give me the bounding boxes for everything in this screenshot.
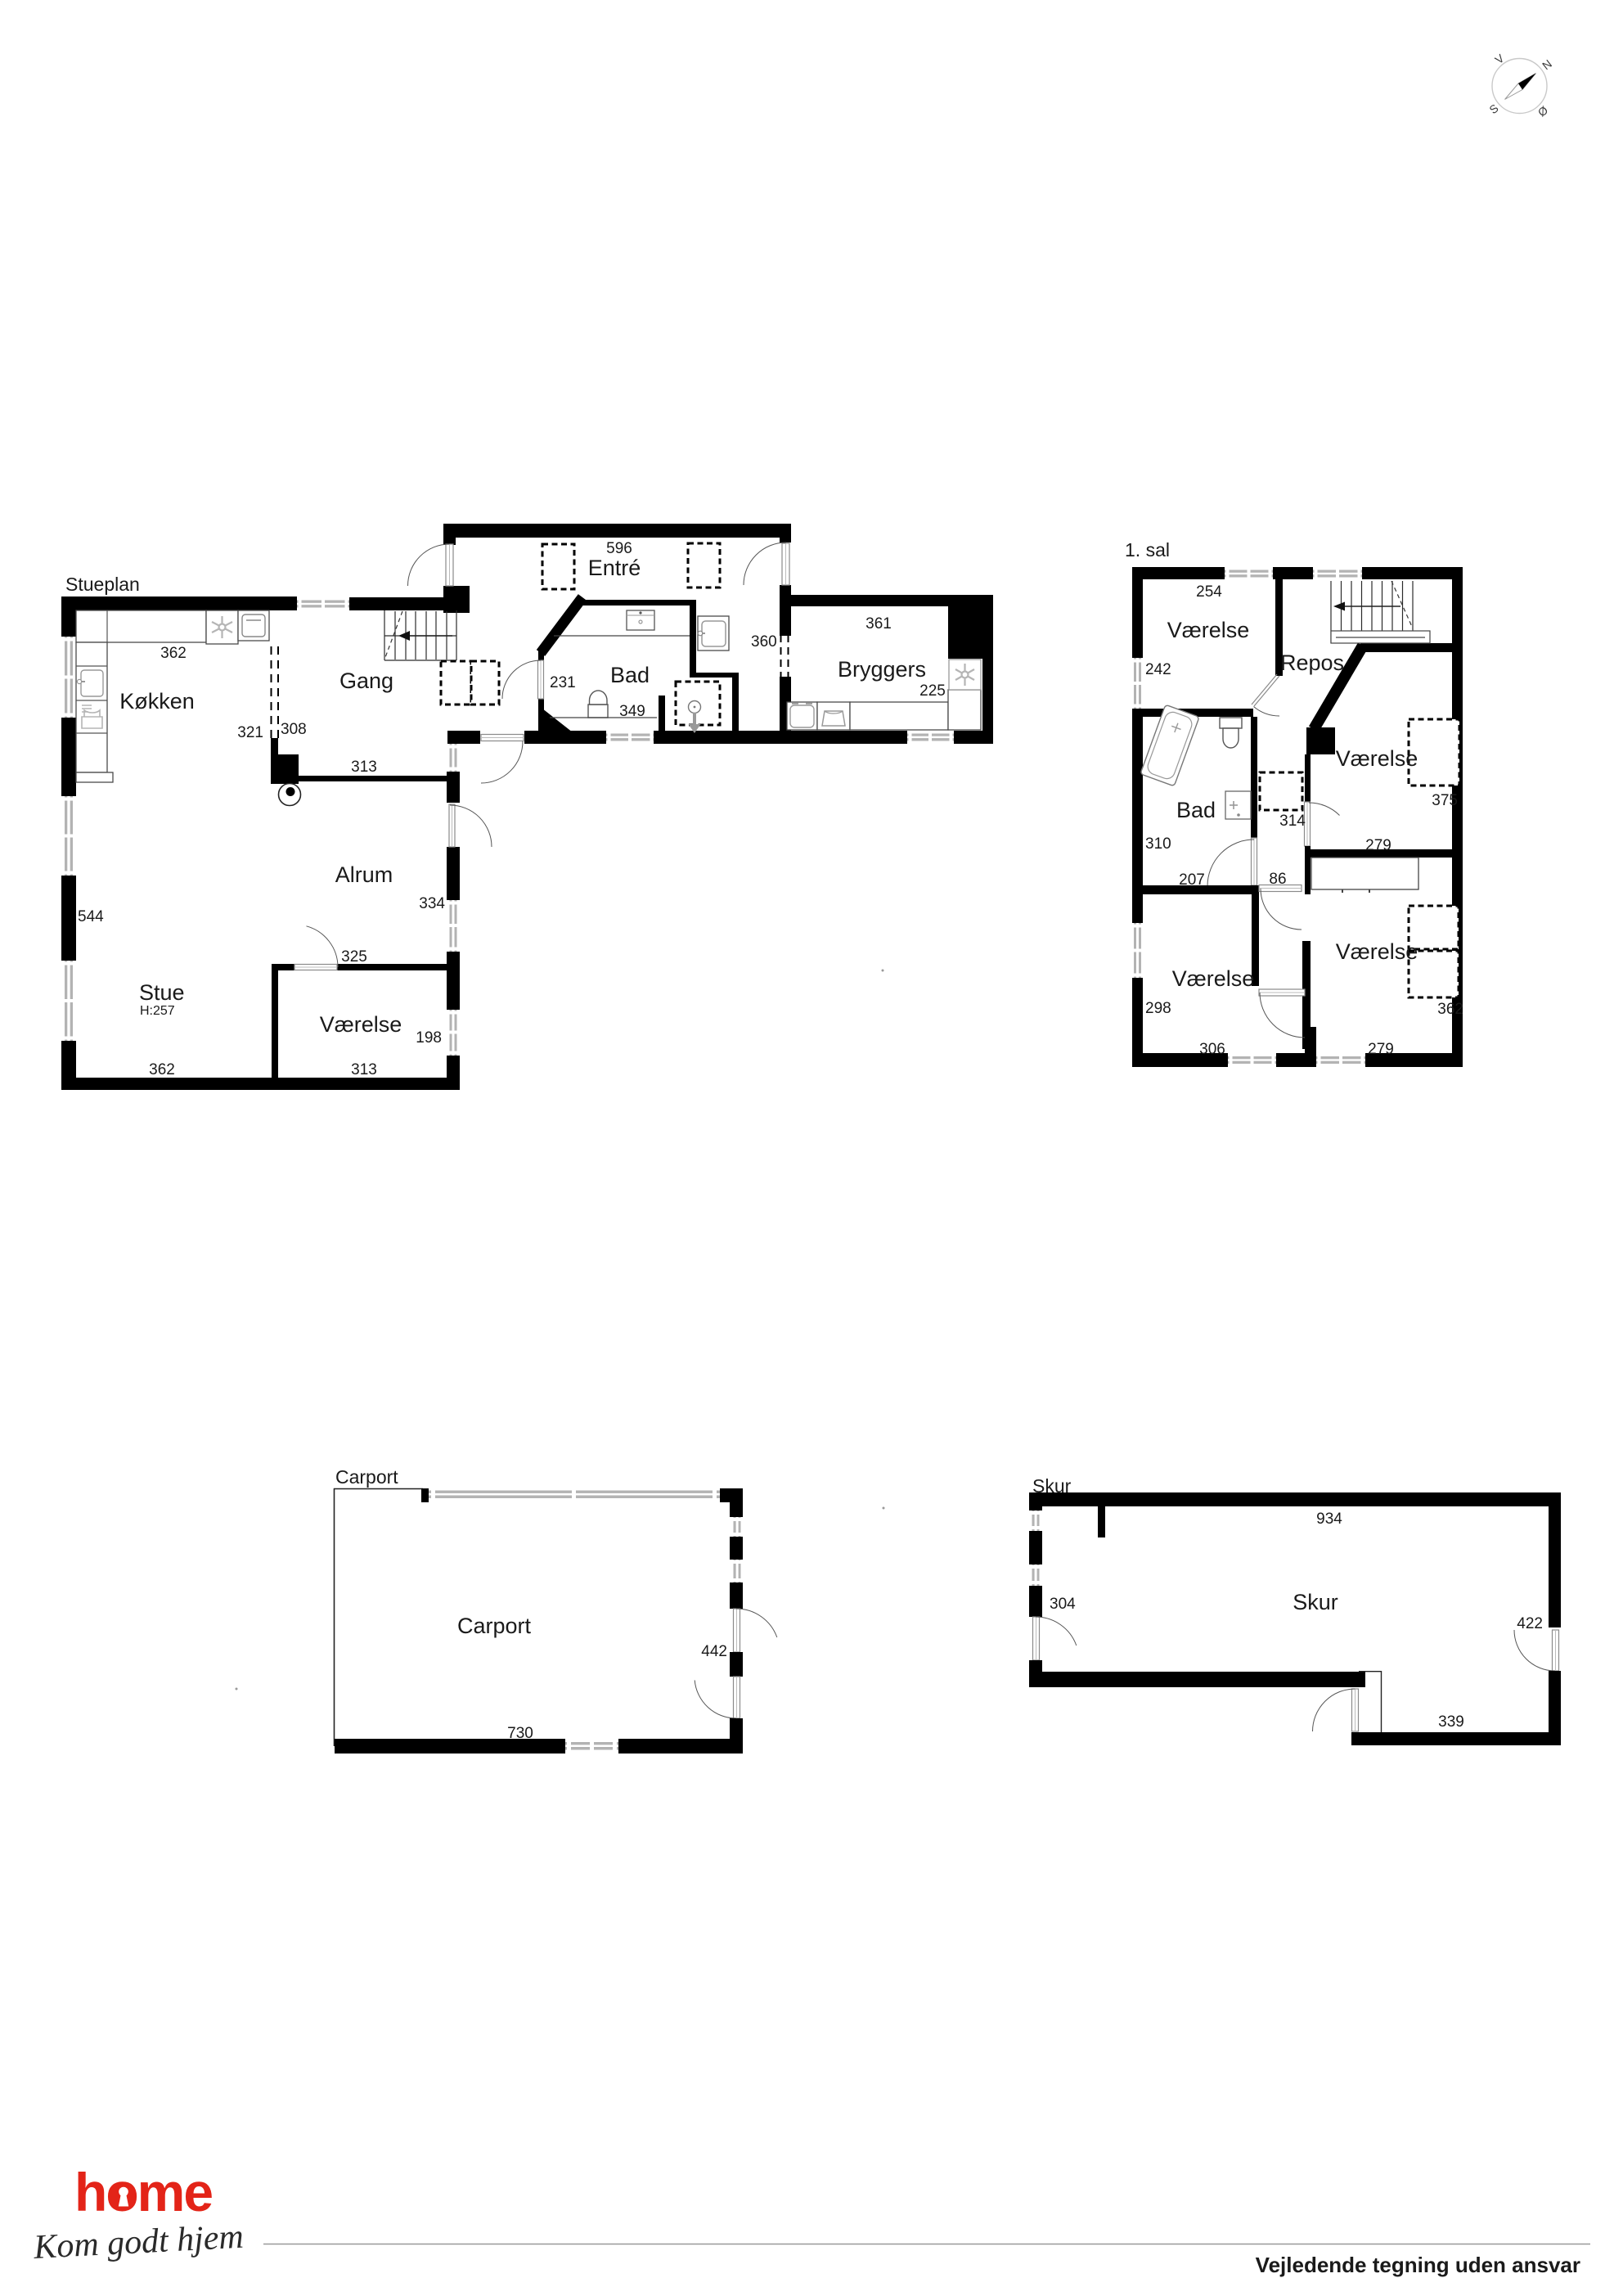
svg-text:242: 242 xyxy=(1145,661,1171,678)
svg-text:544: 544 xyxy=(78,908,104,925)
svg-text:Værelse: Værelse xyxy=(320,1012,402,1037)
svg-text:934: 934 xyxy=(1316,1510,1342,1528)
svg-text:Alrum: Alrum xyxy=(335,862,393,887)
svg-text:198: 198 xyxy=(416,1029,442,1047)
svg-text:1. sal: 1. sal xyxy=(1125,539,1170,560)
svg-text:313: 313 xyxy=(351,759,377,776)
svg-text:Gang: Gang xyxy=(339,669,393,693)
svg-text:Carport: Carport xyxy=(335,1466,398,1488)
svg-text:Værelse: Værelse xyxy=(1336,746,1418,771)
svg-text:Bryggers: Bryggers xyxy=(838,657,926,682)
svg-text:313: 313 xyxy=(351,1061,377,1078)
svg-text:86: 86 xyxy=(1269,871,1286,888)
svg-text:279: 279 xyxy=(1365,837,1391,854)
svg-text:Værelse: Værelse xyxy=(1172,966,1255,991)
svg-text:Carport: Carport xyxy=(457,1614,532,1638)
svg-text:362: 362 xyxy=(1437,1001,1463,1018)
svg-text:308: 308 xyxy=(281,721,307,738)
svg-text:Bad: Bad xyxy=(1176,798,1216,822)
svg-text:Værelse: Værelse xyxy=(1167,618,1250,642)
svg-text:Vejledende tegning uden ansvar: Vejledende tegning uden ansvar xyxy=(1256,2253,1580,2277)
svg-text:325: 325 xyxy=(341,948,367,966)
svg-text:442: 442 xyxy=(701,1643,727,1660)
svg-text:361: 361 xyxy=(865,615,892,633)
svg-text:Bad: Bad xyxy=(610,663,650,687)
svg-text:596: 596 xyxy=(606,540,632,557)
svg-text:225: 225 xyxy=(919,682,946,700)
svg-text:334: 334 xyxy=(419,895,445,912)
svg-text:231: 231 xyxy=(550,674,576,691)
svg-text:home: home xyxy=(74,2162,212,2222)
svg-text:360: 360 xyxy=(751,633,777,651)
svg-text:314: 314 xyxy=(1279,813,1306,830)
svg-text:254: 254 xyxy=(1196,583,1222,601)
svg-text:279: 279 xyxy=(1368,1041,1394,1058)
svg-text:H:257: H:257 xyxy=(140,1004,175,1018)
svg-text:Repos: Repos xyxy=(1280,651,1344,675)
svg-text:362: 362 xyxy=(149,1061,175,1078)
svg-text:Værelse: Værelse xyxy=(1336,939,1418,964)
svg-text:Entré: Entré xyxy=(588,556,641,580)
svg-text:375: 375 xyxy=(1432,792,1458,809)
svg-text:422: 422 xyxy=(1517,1615,1543,1632)
svg-text:Skur: Skur xyxy=(1293,1590,1338,1614)
svg-text:298: 298 xyxy=(1145,1000,1171,1017)
svg-text:Køkken: Køkken xyxy=(119,689,195,714)
svg-text:310: 310 xyxy=(1145,835,1171,853)
svg-text:362: 362 xyxy=(160,645,187,662)
svg-text:349: 349 xyxy=(619,703,645,720)
svg-text:207: 207 xyxy=(1179,871,1205,889)
svg-text:730: 730 xyxy=(507,1725,533,1742)
svg-text:304: 304 xyxy=(1050,1596,1076,1613)
svg-text:Stue: Stue xyxy=(139,980,185,1005)
svg-text:Stueplan: Stueplan xyxy=(65,574,140,595)
svg-text:306: 306 xyxy=(1199,1041,1225,1058)
svg-text:321: 321 xyxy=(237,724,263,741)
svg-text:339: 339 xyxy=(1438,1713,1464,1731)
